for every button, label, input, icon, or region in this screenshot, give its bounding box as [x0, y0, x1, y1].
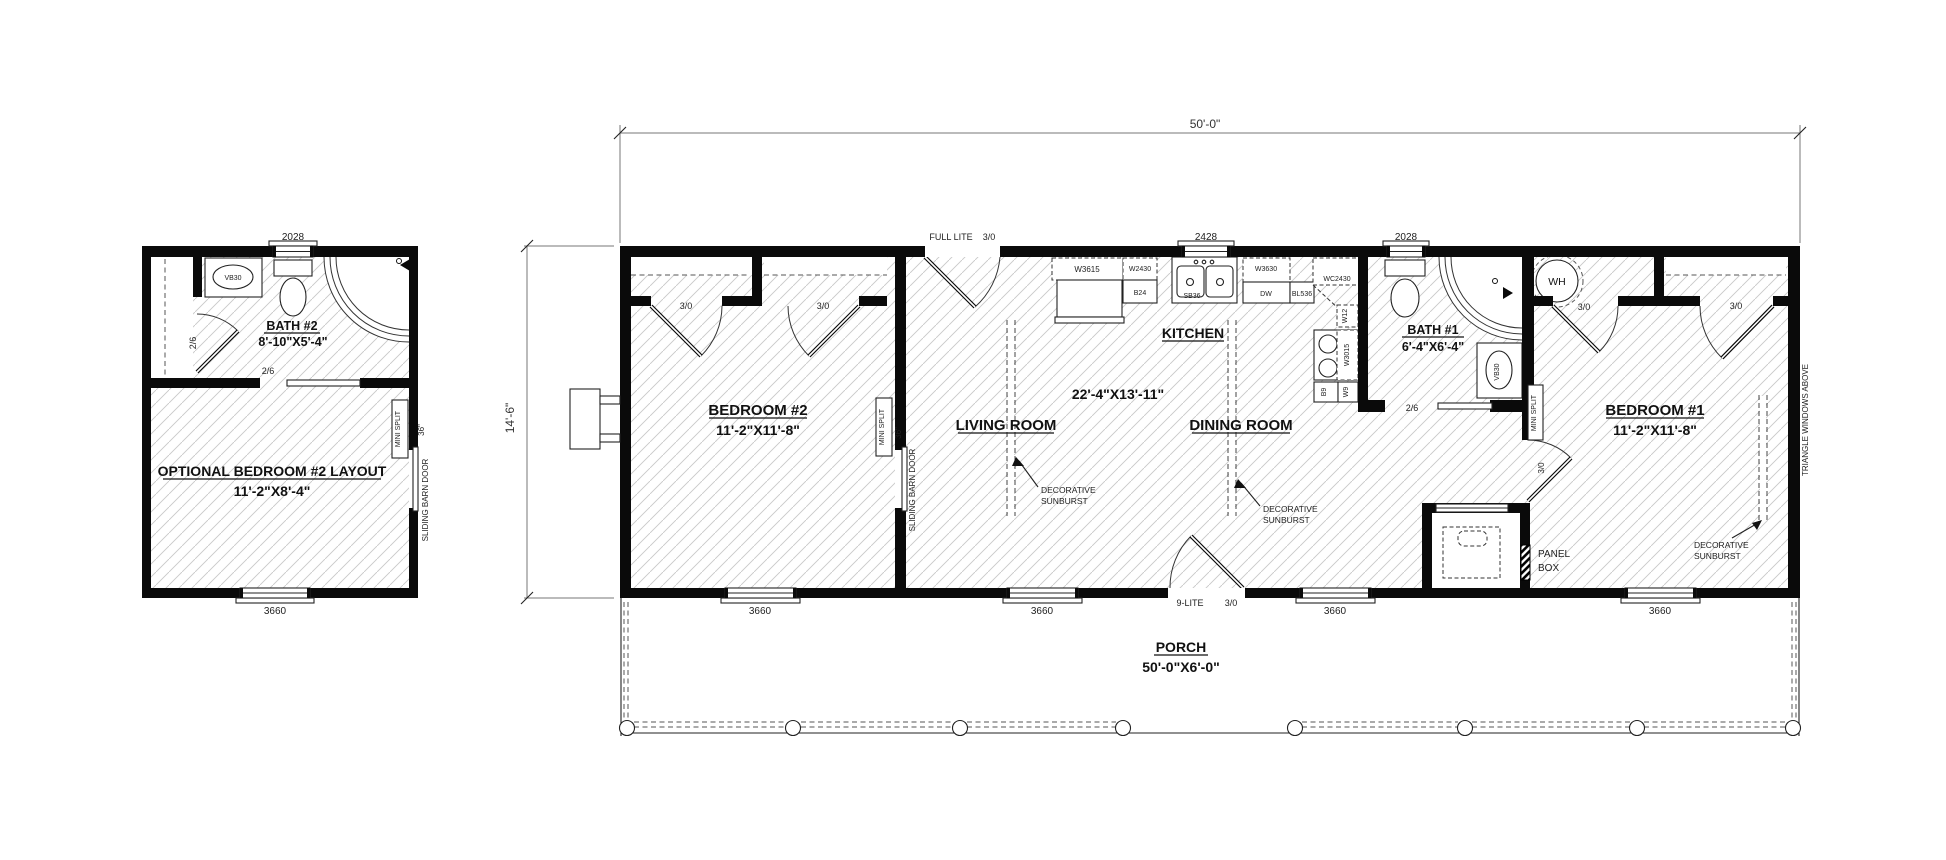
cabinet-w12-label: W12 [1342, 309, 1349, 324]
barn-door-track-left-plan [413, 447, 418, 511]
cabinet-b9-label: B9 [1321, 388, 1328, 397]
barn-door-label-left-plan: SLIDING BARN DOOR [421, 458, 430, 541]
kitchen-size: 22'-4"X13'-11" [1072, 386, 1164, 402]
toilet-bath2 [274, 260, 312, 276]
panel-box [1521, 545, 1530, 580]
sunburst-dining-label2: SUNBURST [1263, 515, 1310, 525]
bedroom1-hall-door-size: 3/0 [1578, 302, 1591, 312]
bedroom1-closet-door-size: 3/0 [1730, 301, 1743, 311]
dishwasher-label: DW [1260, 291, 1272, 298]
barn-door-label-main: SLIDING BARN DOOR [908, 448, 917, 531]
window-3660-bedroom2-label: 3660 [749, 606, 772, 617]
mini-split-bedroom1-label: MINI SPLIT [1531, 394, 1538, 431]
barn-door-track-main [902, 447, 907, 511]
dining-room-label: DINING ROOM [1189, 417, 1292, 434]
full-lite-size: 3/0 [983, 232, 996, 242]
bath2-label: BATH #2 [266, 319, 317, 333]
bedroom1-size: 11'-2"X11'-8" [1613, 422, 1697, 438]
optional-bedroom2-size: 11'-2"X8'-4" [234, 483, 311, 499]
cabinet-w3630-label: W3630 [1255, 266, 1277, 273]
cabinet-bl536-label: BL536 [1292, 291, 1312, 298]
optional-layout-plan: VB30 2/6 2/6 2028 [142, 232, 430, 617]
window-3660-dining-label: 3660 [1324, 606, 1347, 617]
sink-bowl-right [1206, 266, 1233, 297]
porch-label: PORCH [1156, 639, 1207, 655]
window-2028-left [269, 241, 317, 257]
bedroom1-entry-door-size: 3/0 [1537, 462, 1546, 474]
full-lite-label: FULL LITE [929, 232, 972, 242]
sunburst-bedroom1-label2: SUNBURST [1694, 551, 1741, 561]
overall-width-dim: 50'-0" [1190, 117, 1221, 131]
barn-door-size-left-plan: 36" [417, 424, 426, 436]
mini-split-left-plan-label: MINI SPLIT [395, 410, 402, 447]
panel-box-label2: BOX [1538, 563, 1559, 574]
porch-size: 50'-0"X6'-0" [1142, 659, 1220, 675]
sunburst-dining-label1: DECORATIVE [1263, 504, 1318, 514]
porch: PORCH 50'-0"X6'-0" [620, 598, 1801, 736]
cabinet-w3015-label: W3015 [1344, 344, 1351, 366]
bath1-size: 6'-4"X6'-4" [1402, 340, 1464, 354]
vanity-bath2-label: VB30 [224, 275, 241, 282]
cabinet-w2430-label: W2430 [1129, 266, 1151, 273]
optional-bedroom2-label: OPTIONAL BEDROOM #2 LAYOUT [158, 463, 387, 479]
cabinet-w9-label: W9 [1343, 387, 1350, 398]
bath1-pocket-door [1438, 403, 1492, 409]
cabinet-sb36-label: SB36 [1183, 293, 1200, 300]
sunburst-living-label1: DECORATIVE [1041, 485, 1096, 495]
main-plan: W3615 W2430 B24 SB36 W3630 DW BL536 WC24… [570, 232, 1810, 617]
bedroom2-label: BEDROOM #2 [708, 402, 807, 419]
bath1-pocket-door-size: 2/6 [1406, 403, 1419, 413]
cabinet-wc2430-label: WC2430 [1323, 276, 1350, 283]
living-room-label: LIVING ROOM [956, 417, 1057, 434]
mini-split-bedroom2-label: MINI SPLIT [879, 408, 886, 445]
exterior-ac-unit [570, 389, 620, 449]
bath2-size: 8'-10"X5'-4" [258, 335, 327, 349]
vanity-bath1-label: VB30 [1494, 363, 1501, 380]
nine-lite-size: 3/0 [1225, 598, 1238, 608]
overall-depth-dim: 14'-6" [503, 403, 517, 434]
toilet-bath1 [1385, 260, 1425, 276]
window-3660-bedroom1-label: 3660 [1649, 606, 1672, 617]
closet-door-size: 3/0 [817, 301, 830, 311]
window-2028-bath1-label: 2028 [1395, 232, 1418, 243]
bath2-pocket-door-size: 2/6 [262, 366, 275, 376]
sunburst-living-label2: SUNBURST [1041, 496, 1088, 506]
closet-door-size: 3/0 [680, 301, 693, 311]
bedroom2-size: 11'-2"X11'-8" [716, 422, 800, 438]
bedroom1-label: BEDROOM #1 [1605, 402, 1704, 419]
cabinet-w3615-label: W3615 [1074, 265, 1100, 274]
bath2-door-size: 2/6 [188, 337, 198, 350]
triangle-windows-note: TRIANGLE WINDOWS ABOVE [1801, 364, 1810, 476]
kitchen-label: KITCHEN [1162, 325, 1224, 341]
barn-door-size-main: 36" [894, 427, 903, 439]
bath1-label: BATH #1 [1407, 323, 1458, 337]
refrigerator [1057, 280, 1122, 317]
window-2028-left-label: 2028 [282, 232, 305, 243]
floor-plan-drawing: 50'-0" 14'-6" VB30 2/6 [0, 0, 1946, 855]
window-2428 [1178, 241, 1234, 257]
window-2428-label: 2428 [1195, 232, 1218, 243]
window-3660-left [236, 588, 314, 603]
window-3660-left-label: 3660 [264, 606, 287, 617]
water-heater-label: WH [1548, 276, 1566, 288]
window-3660-living-label: 3660 [1031, 606, 1054, 617]
panel-box-label1: PANEL [1538, 549, 1570, 560]
sunburst-bedroom1-label1: DECORATIVE [1694, 540, 1749, 550]
bath2-pocket-door [287, 380, 360, 386]
cabinet-b24-label: B24 [1134, 290, 1147, 297]
floorplan-page: 50'-0" 14'-6" VB30 2/6 [0, 0, 1946, 855]
window-2028-bath1 [1383, 241, 1429, 257]
nine-lite-label: 9-LITE [1176, 598, 1203, 608]
